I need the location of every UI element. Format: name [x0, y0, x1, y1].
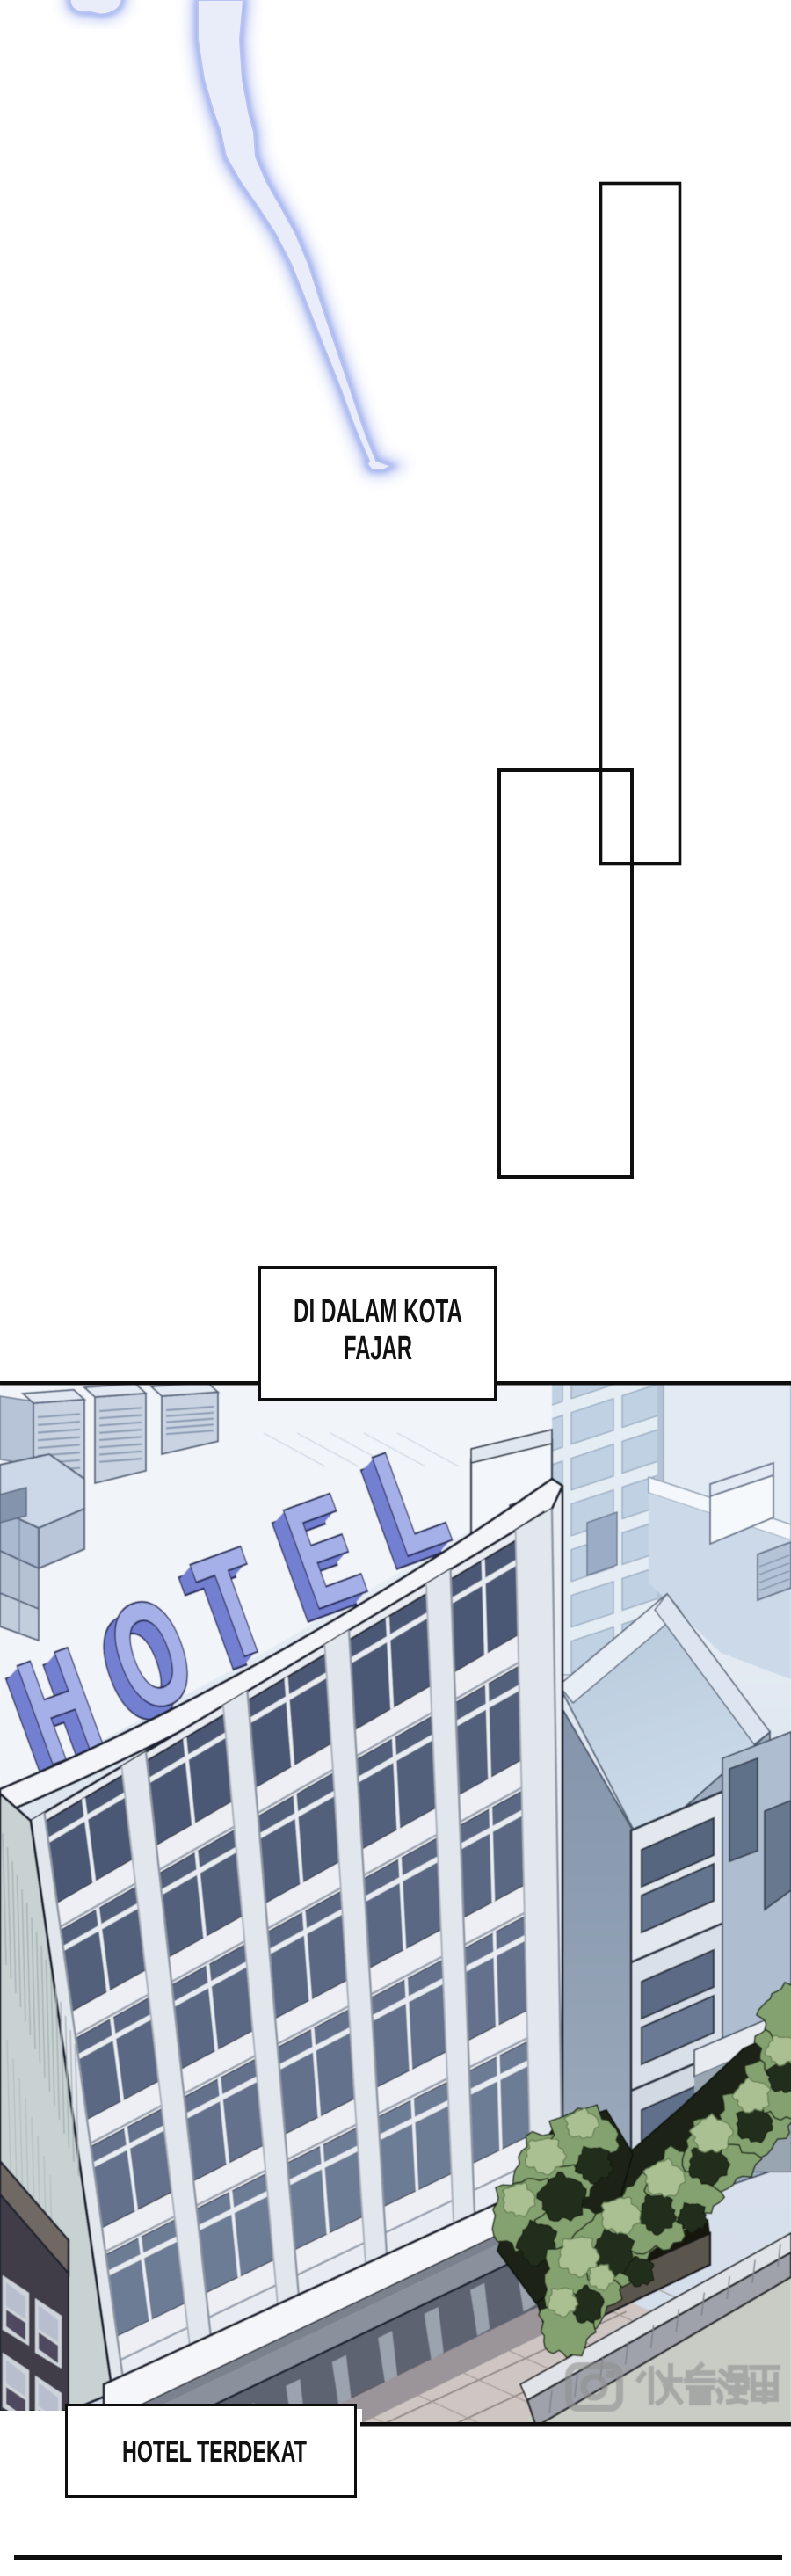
svg-text:DI DALAM KOTA: DI DALAM KOTA — [294, 1293, 462, 1330]
svg-text:HOTEL TERDEKAT: HOTEL TERDEKAT — [122, 2435, 307, 2469]
svg-text:FAJAR: FAJAR — [344, 1330, 412, 1367]
